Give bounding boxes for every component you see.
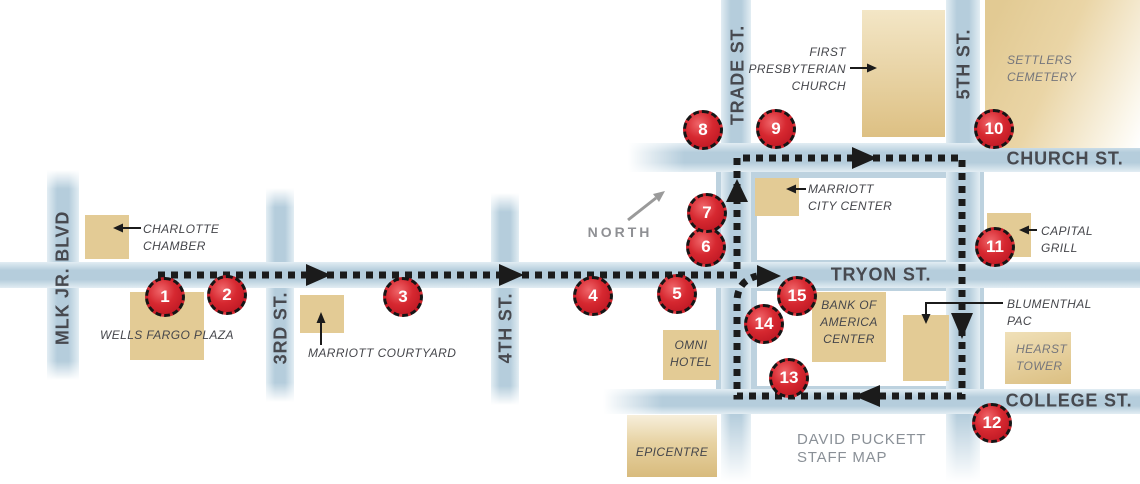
capital-grill-label-line: GRILL [1041, 240, 1111, 257]
tour-stop-14: 14 [744, 304, 784, 344]
street-label-college-street: COLLEGE ST. [1006, 391, 1133, 412]
north-arrow [628, 198, 656, 220]
bank-of-america-center-label-line: AMERICA [812, 314, 886, 331]
tour-stop-6: 6 [686, 227, 726, 267]
settlers-cemetery-label-line: CEMETERY [1007, 69, 1097, 86]
capital-grill-label-line: CAPITAL [1041, 223, 1111, 240]
omni-hotel-label-line: OMNI [663, 337, 719, 354]
north-arrow-head [653, 191, 665, 202]
omni-hotel-label: OMNIHOTEL [663, 337, 719, 371]
epicentre-label-line: EPICENTRE [627, 444, 717, 461]
tour-stop-7: 7 [687, 193, 727, 233]
marriott-courtyard-label: MARRIOTT COURTYARD [308, 345, 458, 362]
omni-hotel-label-line: HOTEL [663, 354, 719, 371]
street-label-church-street: CHURCH ST. [1006, 149, 1123, 170]
marriott-courtyard-building [300, 295, 344, 333]
bank-of-america-center-label-line: BANK OF [812, 297, 886, 314]
charlotte-chamber-label-line: CHARLOTTE [143, 221, 238, 238]
marriott-city-center-label: MARRIOTTCITY CENTER [808, 181, 908, 215]
street-label-4th-street: 4TH ST. [496, 293, 517, 364]
tour-stop-5: 5 [657, 274, 697, 314]
north-label: NORTH [588, 224, 653, 240]
map-credit-line: DAVID PUCKETT [797, 431, 926, 449]
marriott-city-center-building [755, 178, 799, 216]
map-credit: DAVID PUCKETTSTAFF MAP [797, 431, 926, 467]
street-label-5th-street: 5TH ST. [954, 29, 975, 100]
charlotte-chamber-label: CHARLOTTECHAMBER [143, 221, 238, 255]
blumenthal-pac-label-line: BLUMENTHAL [1007, 296, 1102, 313]
blumenthal-pac-building [903, 315, 949, 381]
wells-fargo-plaza-label-line: WELLS FARGO PLAZA [100, 327, 245, 344]
charlotte-chamber-building [85, 215, 129, 259]
first-presbyterian-church-label: FIRSTPRESBYTERIANCHURCH [746, 44, 846, 95]
tour-stop-15: 15 [777, 276, 817, 316]
tour-stop-2: 2 [207, 275, 247, 315]
blumenthal-pac-label: BLUMENTHALPAC [1007, 296, 1102, 330]
capital-grill-label: CAPITALGRILL [1041, 223, 1111, 257]
staff-map-canvas: MLK JR. BLVD3RD ST.4TH ST.TRADE ST.5TH S… [0, 0, 1140, 484]
hearst-tower-label: HEARSTTOWER [1016, 341, 1076, 375]
tour-stop-9: 9 [756, 109, 796, 149]
tour-stop-10: 10 [974, 109, 1014, 149]
wells-fargo-plaza-label: WELLS FARGO PLAZA [100, 327, 245, 344]
tour-stop-13: 13 [769, 358, 809, 398]
tour-stop-11: 11 [975, 227, 1015, 267]
street-label-3rd-street: 3RD ST. [271, 292, 292, 365]
settlers-cemetery-label-line: SETTLERS [1007, 52, 1097, 69]
settlers-cemetery-label: SETTLERSCEMETERY [1007, 52, 1097, 86]
bank-of-america-center-label-line: CENTER [812, 331, 886, 348]
tour-stop-8: 8 [683, 110, 723, 150]
hearst-tower-label-line: HEARST [1016, 341, 1076, 358]
map-credit-line: STAFF MAP [797, 449, 926, 467]
hearst-tower-label-line: TOWER [1016, 358, 1076, 375]
first-presbyterian-church-label-line: CHURCH [746, 78, 846, 95]
street-label-mlk-jr-blvd: MLK JR. BLVD [53, 211, 74, 345]
marriott-city-center-label-line: CITY CENTER [808, 198, 908, 215]
marriott-courtyard-label-line: MARRIOTT COURTYARD [308, 345, 458, 362]
first-presbyterian-church-building [862, 10, 945, 137]
first-presbyterian-church-label-line: FIRST [746, 44, 846, 61]
marriott-city-center-label-line: MARRIOTT [808, 181, 908, 198]
tour-stop-3: 3 [383, 277, 423, 317]
bank-of-america-center-label: BANK OFAMERICACENTER [812, 297, 886, 348]
blumenthal-pac-label-line: PAC [1007, 313, 1102, 330]
tour-stop-4: 4 [573, 276, 613, 316]
charlotte-chamber-label-line: CHAMBER [143, 238, 238, 255]
street-label-tryon-street: TRYON ST. [831, 265, 932, 286]
epicentre-label: EPICENTRE [627, 444, 717, 461]
tour-stop-1: 1 [145, 277, 185, 317]
first-presbyterian-church-label-line: PRESBYTERIAN [746, 61, 846, 78]
